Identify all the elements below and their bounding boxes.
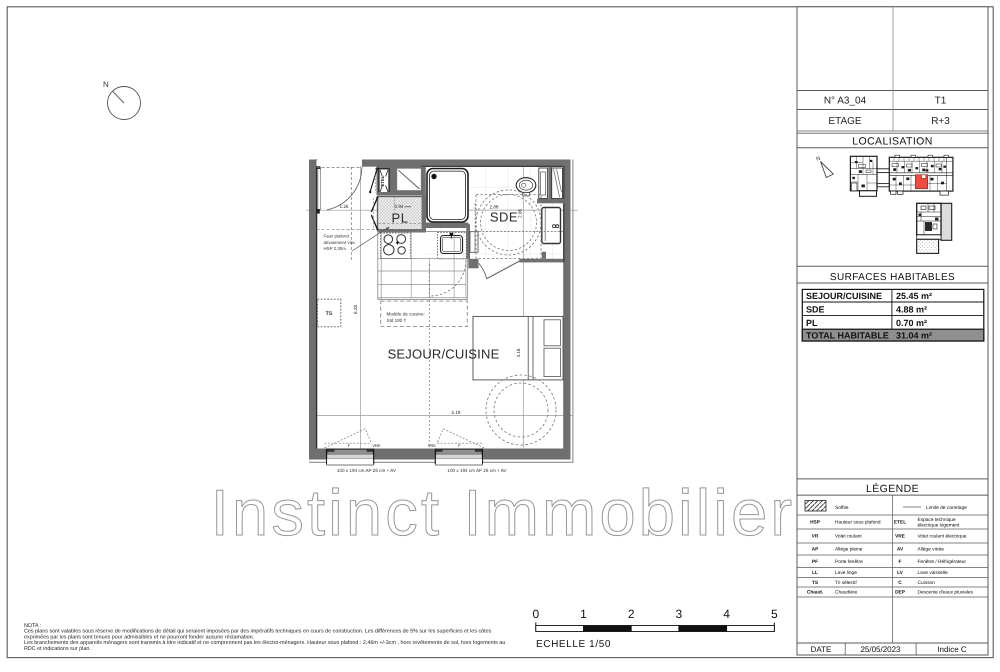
svg-text:T1: T1 (935, 96, 947, 107)
svg-text:Hauteur sous plafond: Hauteur sous plafond (835, 520, 881, 526)
svg-text:ETAGE: ETAGE (828, 116, 861, 127)
svg-text:1: 1 (580, 607, 587, 621)
svg-text:R+3: R+3 (931, 116, 950, 127)
svg-text:VRE: VRE (372, 443, 381, 448)
svg-text:C: C (898, 580, 902, 586)
svg-text:PL: PL (806, 318, 818, 328)
svg-text:HSP 2,30m: HSP 2,30m (324, 246, 347, 251)
svg-text:4.18: 4.18 (516, 348, 521, 357)
svg-text:Std 180 T: Std 180 T (387, 318, 407, 323)
svg-text:Modèle de cuisine:: Modèle de cuisine: (387, 312, 425, 317)
svg-text:5.18: 5.18 (452, 410, 461, 415)
svg-text:F: F (899, 559, 902, 565)
svg-text:Lave vaisselle: Lave vaisselle (918, 570, 948, 576)
svg-text:0.70 m²: 0.70 m² (896, 318, 927, 328)
svg-text:Volet roulant électrique: Volet roulant électrique (918, 534, 967, 540)
svg-text:2.88: 2.88 (490, 204, 499, 209)
svg-text:SURFACES HABITABLES: SURFACES HABITABLES (830, 272, 955, 283)
svg-text:2.06: 2.06 (518, 209, 523, 218)
svg-text:LL: LL (812, 570, 818, 576)
svg-text:HSP: HSP (810, 520, 821, 526)
svg-text:LOCALISATION: LOCALISATION (852, 136, 932, 148)
svg-text:SEJOUR/CUISINE: SEJOUR/CUISINE (388, 347, 500, 362)
svg-text:DEP: DEP (895, 590, 906, 596)
svg-text:dévoiement vmc: dévoiement vmc (324, 240, 357, 245)
svg-text:4.88 m²: 4.88 m² (896, 305, 927, 315)
svg-text:Chaudière: Chaudière (835, 590, 857, 596)
svg-text:3: 3 (676, 607, 683, 621)
svg-text:4: 4 (723, 607, 730, 621)
svg-text:25.45 m²: 25.45 m² (896, 291, 932, 301)
svg-text:RDC et indications sur plan.: RDC et indications sur plan. (24, 646, 91, 652)
svg-text:ECHELLE 1/50: ECHELLE 1/50 (536, 639, 611, 650)
svg-text:Allège pleine: Allège pleine (835, 547, 863, 553)
svg-text:25/05/2023: 25/05/2023 (860, 645, 901, 654)
svg-text:Faux plafond: Faux plafond (324, 234, 350, 239)
svg-text:LÉGENDE: LÉGENDE (866, 482, 919, 495)
svg-text:Cuisson: Cuisson (918, 580, 936, 586)
svg-text:N: N (103, 80, 109, 89)
svg-text:0: 0 (532, 607, 539, 621)
svg-text:DATE: DATE (811, 645, 832, 654)
svg-text:Les branchements des appareils: Les branchements des appareils ménagers … (24, 640, 505, 646)
svg-text:Fenêtre / Réfrigérateur: Fenêtre / Réfrigérateur (918, 559, 967, 565)
svg-text:N° A3_04: N° A3_04 (824, 96, 867, 107)
svg-text:Chaud.: Chaud. (807, 590, 823, 596)
svg-text:ETEL: ETEL (894, 520, 906, 526)
svg-text:Porte fenêtre: Porte fenêtre (835, 559, 863, 565)
svg-text:électrique logement: électrique logement (918, 522, 961, 528)
svg-text:ETEL: ETEL (380, 175, 385, 186)
svg-text:Limite de carrelage: Limite de carrelage (926, 505, 967, 511)
svg-text:2: 2 (628, 607, 635, 621)
svg-text:1.26: 1.26 (340, 204, 349, 209)
svg-text:Espace technique: Espace technique (918, 517, 956, 523)
svg-text:Lave linge: Lave linge (835, 570, 857, 576)
svg-text:100 x 194 cm AP 26 cm + AV: 100 x 194 cm AP 26 cm + AV (337, 468, 397, 473)
svg-text:Tri sélectif: Tri sélectif (835, 580, 857, 586)
svg-text:VRE: VRE (895, 534, 906, 540)
svg-text:5: 5 (771, 607, 778, 621)
svg-text:Allège vitrée: Allège vitrée (918, 547, 945, 553)
svg-text:SEJOUR/CUISINE: SEJOUR/CUISINE (806, 291, 882, 301)
svg-text:PF: PF (812, 559, 818, 565)
svg-text:SDE: SDE (806, 305, 825, 315)
svg-text:AP: AP (812, 547, 819, 553)
svg-text:0.94: 0.94 (395, 204, 404, 209)
svg-text:VRE: VRE (428, 443, 437, 448)
svg-text:VR: VR (812, 534, 819, 540)
svg-text:Descente d'eaux pluviales: Descente d'eaux pluviales (918, 590, 974, 596)
svg-text:AV: AV (897, 547, 904, 553)
svg-text:TS: TS (326, 311, 333, 317)
svg-text:TS: TS (812, 580, 819, 586)
svg-text:Indice C: Indice C (937, 645, 967, 654)
svg-text:Instinct Immobilier: Instinct Immobilier (211, 476, 796, 549)
svg-text:PL: PL (392, 211, 409, 226)
svg-text:SDE: SDE (490, 210, 518, 225)
svg-text:Soffite: Soffite (835, 505, 849, 511)
svg-text:Volet roulant: Volet roulant (835, 534, 862, 540)
svg-text:LV: LV (897, 570, 904, 576)
svg-text:31.04 m²: 31.04 m² (896, 330, 932, 340)
svg-text:TOTAL HABITABLE: TOTAL HABITABLE (806, 330, 889, 340)
svg-text:100 x 194 cm AP 26 cm + AV: 100 x 194 cm AP 26 cm + AV (447, 468, 507, 473)
svg-text:6.28: 6.28 (353, 305, 358, 314)
